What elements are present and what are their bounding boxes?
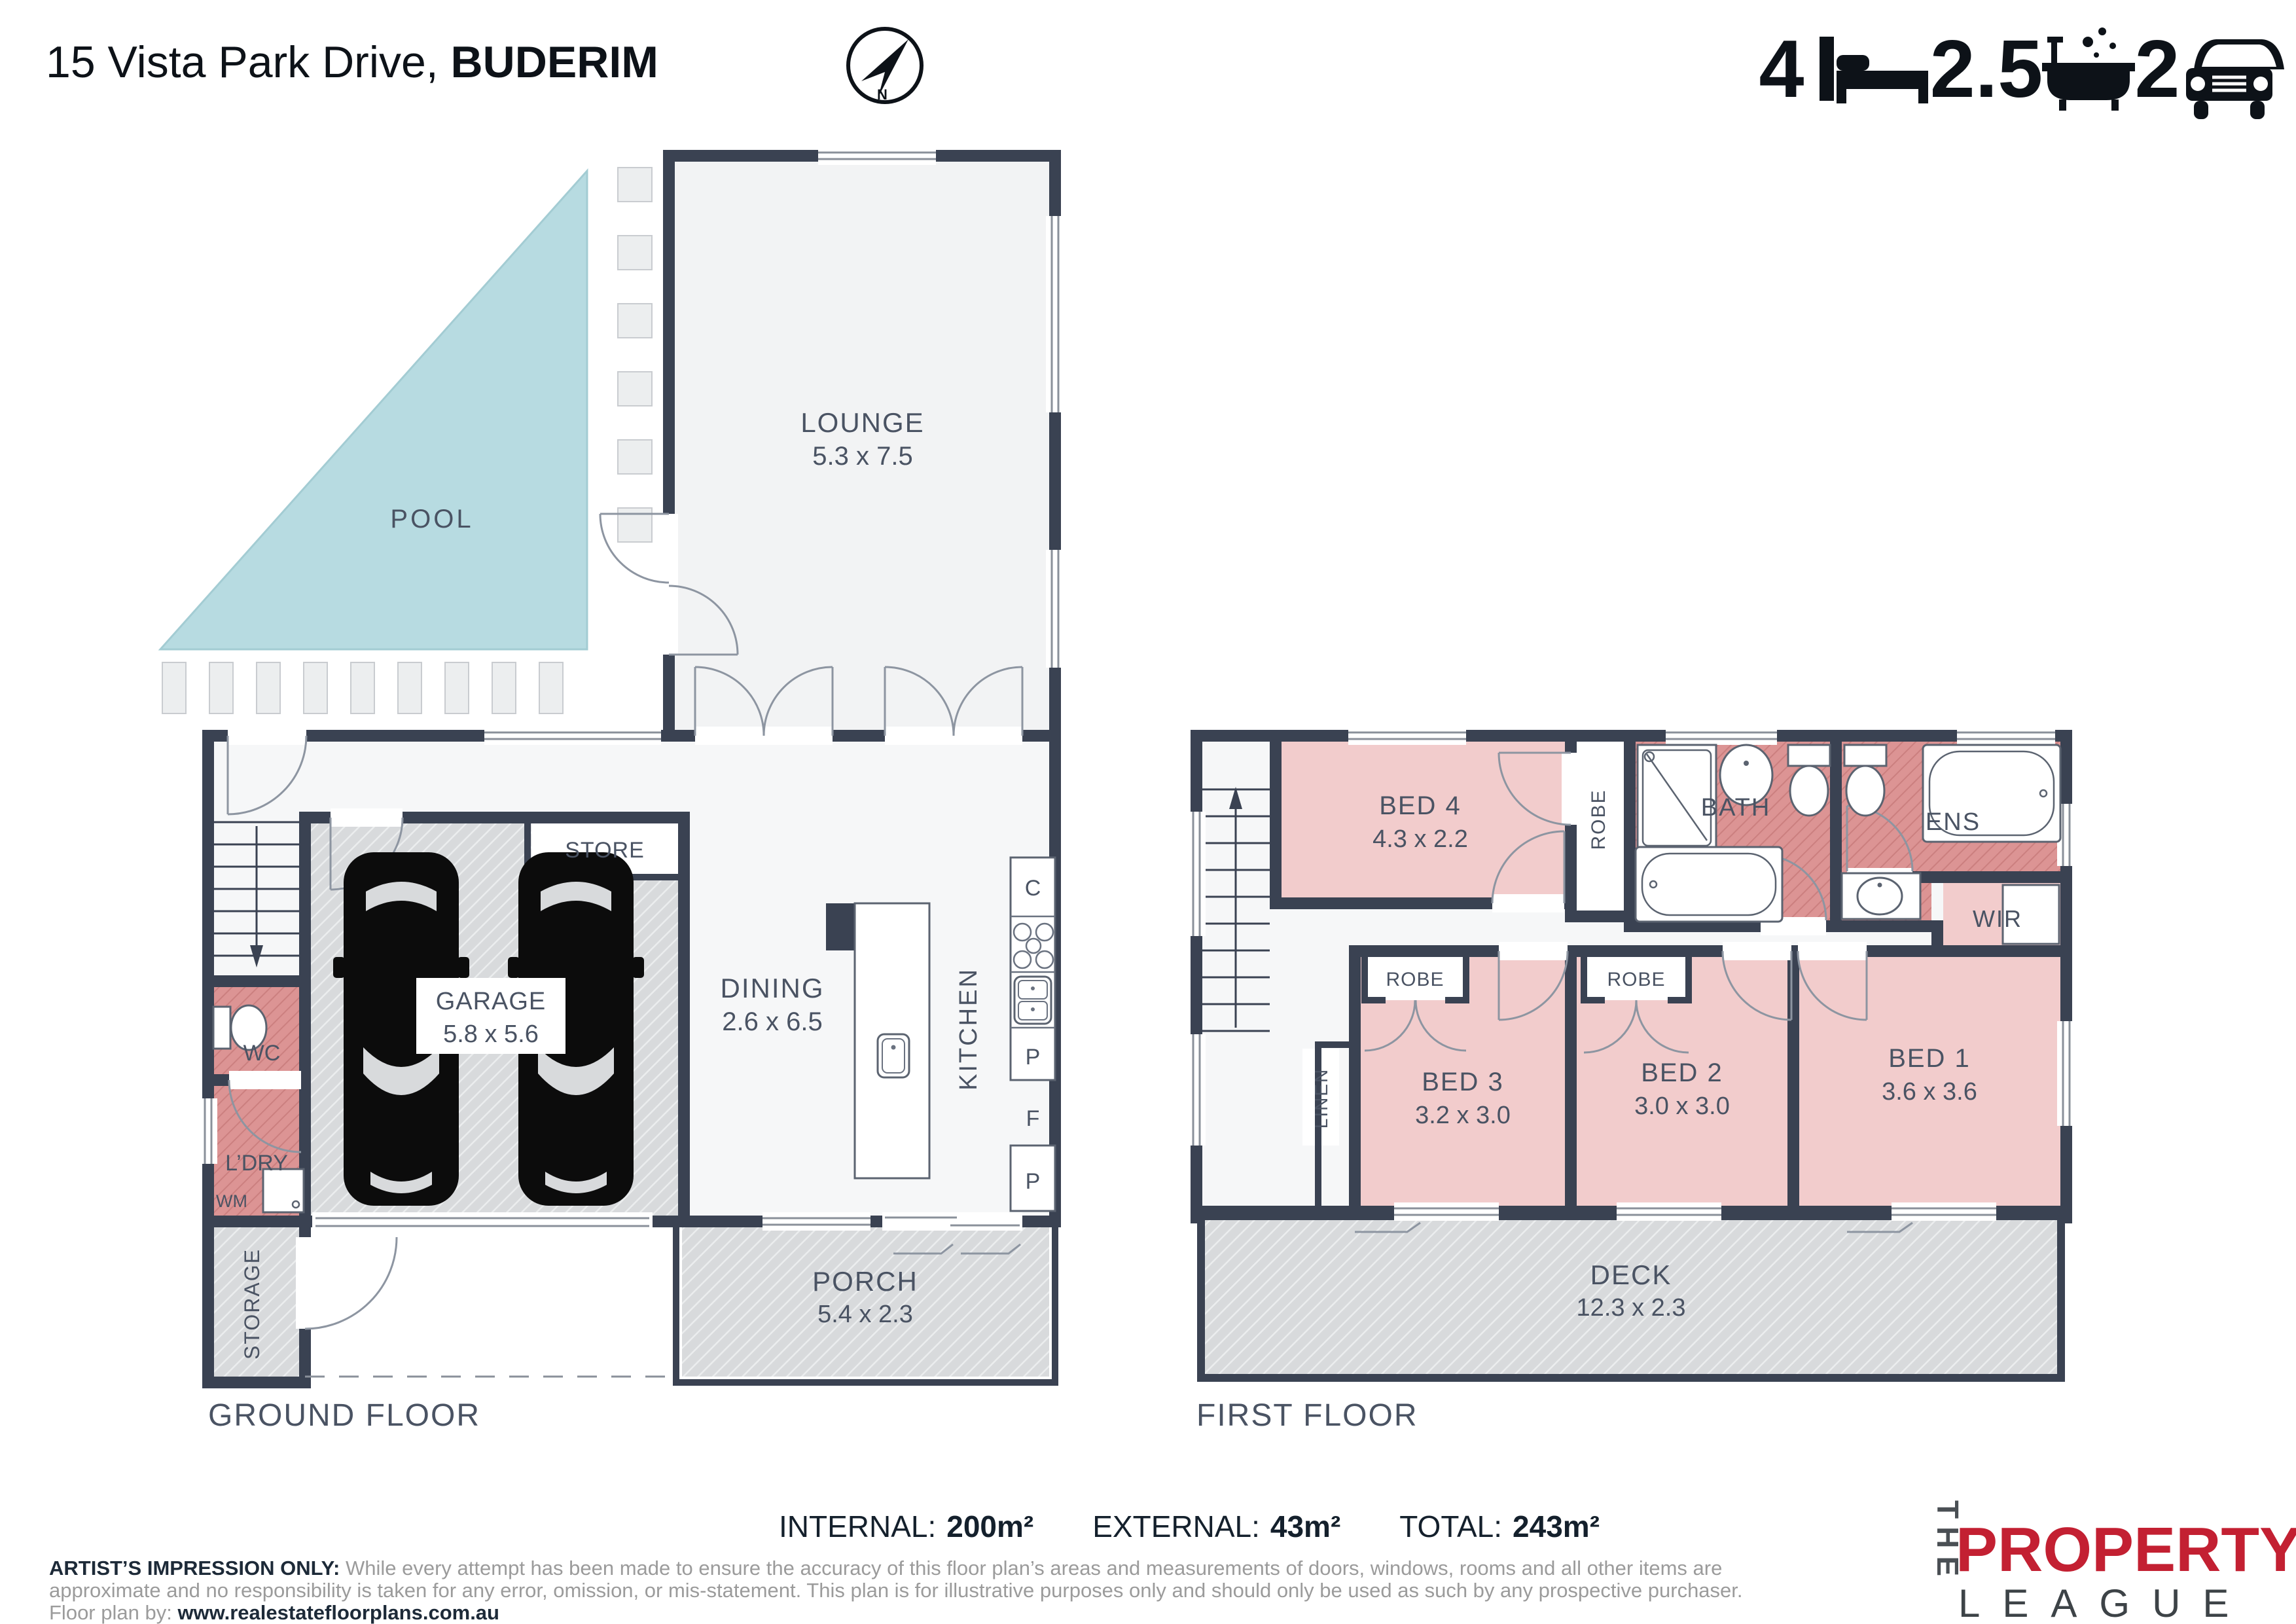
baths-count: 2.5 <box>1930 24 2043 115</box>
bed4-dims: 4.3 x 2.2 <box>1372 825 1468 853</box>
first-floor-title: FIRST FLOOR <box>1196 1398 1418 1433</box>
kitchen-letter-p2: P <box>1026 1169 1041 1194</box>
area-summary-text: INTERNAL:200m²EXTERNAL:43m²TOTAL:243m² <box>779 1509 1600 1543</box>
compass-icon: N <box>848 29 922 103</box>
bed3-dims: 3.2 x 3.0 <box>1415 1102 1511 1129</box>
lounge-label: LOUNGE <box>800 407 924 438</box>
bed2-label: BED 2 <box>1641 1058 1723 1087</box>
wc-toilet-tank <box>213 1007 230 1049</box>
svg-text:N: N <box>877 86 888 103</box>
cars-count: 2 <box>2135 24 2180 115</box>
logo-property: PROPERTY <box>1956 1515 2296 1585</box>
logo-league: LEAGUE <box>1958 1581 2251 1624</box>
robe2-label: ROBE <box>1607 969 1665 990</box>
ens-label: ENS <box>1926 808 1981 836</box>
bed1-label: BED 1 <box>1888 1044 1971 1073</box>
wc-label: WC <box>243 1041 281 1066</box>
kitchen-letter-f: F <box>1026 1106 1040 1131</box>
dining-dims: 2.6 x 6.5 <box>722 1007 822 1036</box>
garage-dims: 5.8 x 5.6 <box>443 1020 539 1048</box>
wir-label: WIR <box>1973 905 2022 932</box>
bed4-label: BED 4 <box>1379 791 1462 820</box>
floorplan-page: 15 Vista Park Drive, BUDERIM N 4 2.5 <box>0 0 2296 1624</box>
deck-label: DECK <box>1590 1259 1672 1290</box>
pool-label: POOL <box>390 505 473 533</box>
store-label: STORE <box>565 838 645 863</box>
bath-toilet-icon <box>1788 745 1830 816</box>
kitchen-letter-p1: P <box>1026 1045 1041 1070</box>
page-title: 15 Vista Park Drive, BUDERIM <box>46 37 658 87</box>
laundry-label: L’DRY <box>225 1151 288 1176</box>
bed-icon <box>1820 37 1928 103</box>
bath-icon <box>2042 27 2135 111</box>
floorplan-canvas: 15 Vista Park Drive, BUDERIM N 4 2.5 <box>0 0 2296 1624</box>
ens-toilet-icon <box>1844 745 1886 816</box>
ens-sink-icon <box>1842 873 1920 919</box>
car-icon <box>2186 39 2284 119</box>
property-stats: 4 2.5 2 <box>1759 24 2284 119</box>
ground-floor-plan: POOL LOUNGE 5.3 x 7.5 STORE GARAGE 5.8 x… <box>160 147 1064 1433</box>
bath-label: BATH <box>1701 794 1771 821</box>
porch-label: PORCH <box>812 1266 918 1297</box>
room-pool <box>160 171 587 649</box>
porch-dims: 5.4 x 2.3 <box>817 1301 913 1328</box>
kitchen-label: KITCHEN <box>955 967 982 1091</box>
bed1-dims: 3.6 x 3.6 <box>1882 1078 1977 1106</box>
garage-label: GARAGE <box>436 988 547 1015</box>
bed3-label: BED 3 <box>1422 1068 1504 1096</box>
storage-label: STORAGE <box>240 1248 264 1360</box>
first-floor-plan: BED 4 4.3 x 2.2 ROBE BATH ENS WIR ROBE R… <box>1187 727 2075 1433</box>
disclaimer-line3: Floor plan by: www.realestatefloorplans.… <box>49 1601 499 1624</box>
disclaimer: ARTIST’S IMPRESSION ONLY: While every at… <box>49 1557 1743 1624</box>
area-summary: INTERNAL:200m²EXTERNAL:43m²TOTAL:243m² <box>779 1509 1600 1543</box>
ground-floor-title: GROUND FLOOR <box>208 1398 480 1433</box>
beds-count: 4 <box>1759 24 1804 115</box>
agency-logo: THE PROPERTY LEAGUE <box>1931 1500 2296 1624</box>
island-sink-icon <box>878 1034 909 1077</box>
deck-dims: 12.3 x 2.3 <box>1577 1294 1686 1322</box>
disclaimer-line1: ARTIST’S IMPRESSION ONLY: While every at… <box>49 1557 1722 1579</box>
bathtub-icon <box>1636 847 1782 922</box>
robe3-label: ROBE <box>1386 969 1444 990</box>
lounge-dims: 5.3 x 7.5 <box>812 442 912 471</box>
wm-label: WM <box>216 1191 247 1211</box>
header: 15 Vista Park Drive, BUDERIM N 4 2.5 <box>46 24 2284 119</box>
kitchen-letter-c: C <box>1025 876 1041 901</box>
bed2-dims: 3.0 x 3.0 <box>1634 1092 1730 1120</box>
robe4-label: ROBE <box>1588 789 1609 850</box>
kitchen-sink-icon <box>1014 977 1051 1024</box>
linen-label: LINEN <box>1311 1068 1331 1128</box>
dining-label: DINING <box>721 973 825 1003</box>
disclaimer-line2: approximate and no responsibility is tak… <box>49 1579 1743 1602</box>
